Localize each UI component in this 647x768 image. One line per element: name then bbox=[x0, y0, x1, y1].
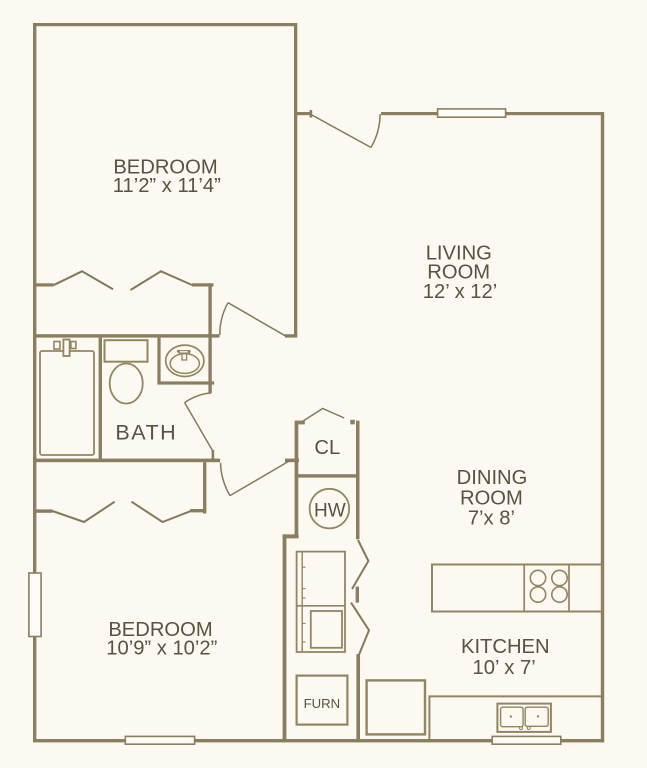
svg-text:10’ x 7’: 10’ x 7’ bbox=[472, 657, 535, 679]
svg-text:10’9” x 10’2”: 10’9” x 10’2” bbox=[106, 638, 217, 660]
svg-text:BATH: BATH bbox=[115, 420, 177, 444]
svg-text:ROOM: ROOM bbox=[460, 488, 523, 510]
svg-text:DINING: DINING bbox=[457, 467, 528, 489]
svg-text:7’x 8’: 7’x 8’ bbox=[468, 508, 515, 530]
svg-text:ROOM: ROOM bbox=[427, 261, 490, 283]
svg-text:12’ x 12’: 12’ x 12’ bbox=[423, 281, 497, 303]
svg-text:KITCHEN: KITCHEN bbox=[461, 636, 550, 658]
svg-text:CL: CL bbox=[314, 437, 340, 459]
svg-text:FURN: FURN bbox=[304, 696, 341, 711]
svg-text:11’2” x 11’4”: 11’2” x 11’4” bbox=[113, 175, 221, 197]
svg-text:HW: HW bbox=[314, 500, 346, 521]
